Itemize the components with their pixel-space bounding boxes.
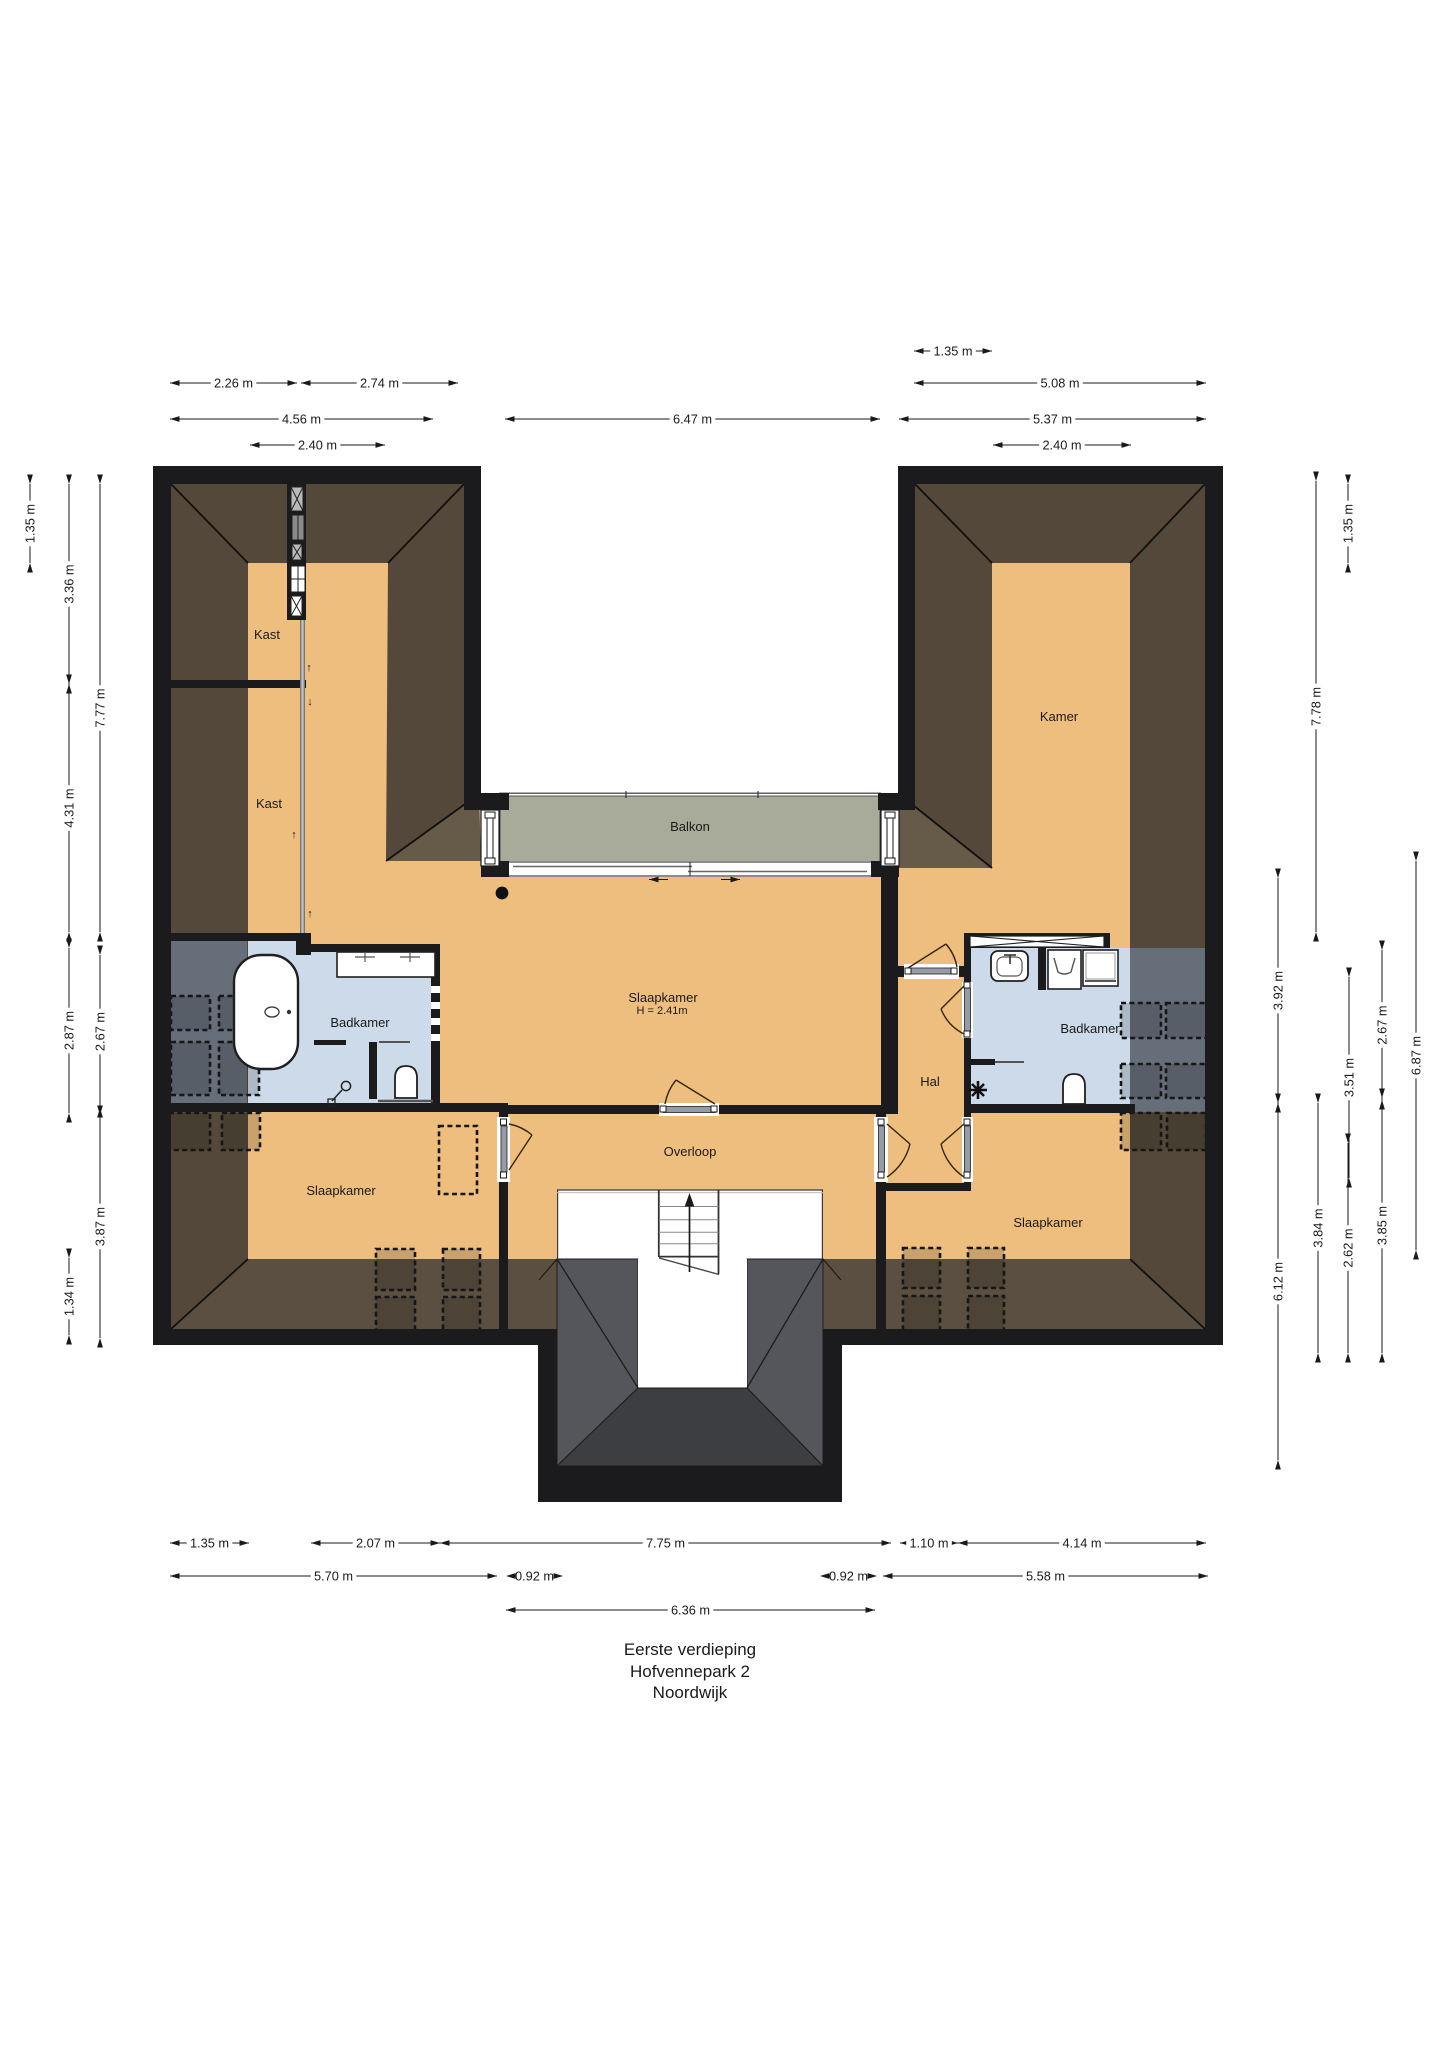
svg-text:7.75 m: 7.75 m [646, 1535, 685, 1550]
svg-text:Noordwijk: Noordwijk [653, 1683, 728, 1702]
svg-text:Badkamer: Badkamer [1060, 1021, 1120, 1036]
svg-text:5.58 m: 5.58 m [1026, 1568, 1065, 1583]
svg-text:2.87 m: 2.87 m [61, 1011, 76, 1050]
svg-text:2.67 m: 2.67 m [92, 1012, 107, 1051]
svg-text:2.40 m: 2.40 m [1042, 437, 1081, 452]
svg-text:5.37 m: 5.37 m [1033, 411, 1072, 426]
svg-text:4.14 m: 4.14 m [1062, 1535, 1101, 1550]
svg-text:4.56 m: 4.56 m [282, 411, 321, 426]
svg-text:3.85 m: 3.85 m [1374, 1206, 1389, 1245]
svg-text:Slaapkamer: Slaapkamer [1013, 1215, 1083, 1230]
svg-text:1.35 m: 1.35 m [1340, 504, 1355, 543]
svg-text:0.92 m: 0.92 m [515, 1568, 554, 1583]
svg-text:Kamer: Kamer [1040, 709, 1079, 724]
svg-text:6.36 m: 6.36 m [671, 1602, 710, 1617]
svg-text:Badkamer: Badkamer [330, 1015, 390, 1030]
svg-text:5.70 m: 5.70 m [314, 1568, 353, 1583]
svg-text:3.87 m: 3.87 m [92, 1207, 107, 1246]
svg-text:Slaapkamer: Slaapkamer [306, 1183, 376, 1198]
svg-text:↓: ↓ [307, 696, 313, 708]
svg-text:2.67 m: 2.67 m [1374, 1005, 1389, 1044]
svg-text:Kast: Kast [256, 796, 282, 811]
svg-text:6.12 m: 6.12 m [1270, 1262, 1285, 1301]
svg-text:2.62 m: 2.62 m [1340, 1228, 1355, 1267]
svg-text:↑: ↑ [306, 662, 312, 674]
svg-text:1.35 m: 1.35 m [933, 343, 972, 358]
svg-text:↑: ↑ [291, 829, 297, 841]
svg-text:Kast: Kast [254, 627, 280, 642]
svg-text:5.08 m: 5.08 m [1040, 375, 1079, 390]
svg-text:2.74 m: 2.74 m [360, 375, 399, 390]
svg-text:0.92 m: 0.92 m [829, 1568, 868, 1583]
svg-text:Slaapkamer: Slaapkamer [628, 990, 698, 1005]
svg-text:Hal: Hal [920, 1074, 940, 1089]
svg-text:3.36 m: 3.36 m [61, 564, 76, 603]
svg-text:6.87 m: 6.87 m [1408, 1036, 1423, 1075]
svg-text:3.84 m: 3.84 m [1310, 1208, 1325, 1247]
svg-text:Eerste verdieping: Eerste verdieping [624, 1640, 756, 1659]
svg-text:6.47 m: 6.47 m [673, 411, 712, 426]
svg-text:2.26 m: 2.26 m [214, 375, 253, 390]
svg-text:3.51 m: 3.51 m [1341, 1058, 1356, 1097]
svg-text:7.77 m: 7.77 m [92, 688, 107, 727]
svg-text:7.78 m: 7.78 m [1308, 687, 1323, 726]
svg-text:1.10 m: 1.10 m [909, 1535, 948, 1550]
svg-text:2.07 m: 2.07 m [356, 1535, 395, 1550]
svg-text:Balkon: Balkon [670, 819, 710, 834]
svg-text:1.35 m: 1.35 m [22, 504, 37, 543]
svg-text:Overloop: Overloop [664, 1144, 717, 1159]
svg-text:2.40 m: 2.40 m [298, 437, 337, 452]
svg-text:4.31 m: 4.31 m [61, 788, 76, 827]
svg-text:↑: ↑ [307, 908, 313, 920]
svg-text:3.92 m: 3.92 m [1270, 971, 1285, 1010]
svg-text:1.35 m: 1.35 m [190, 1535, 229, 1550]
svg-text:1.34 m: 1.34 m [61, 1277, 76, 1316]
svg-text:H = 2.41m: H = 2.41m [636, 1005, 687, 1017]
svg-text:Hofvennepark 2: Hofvennepark 2 [630, 1662, 750, 1681]
